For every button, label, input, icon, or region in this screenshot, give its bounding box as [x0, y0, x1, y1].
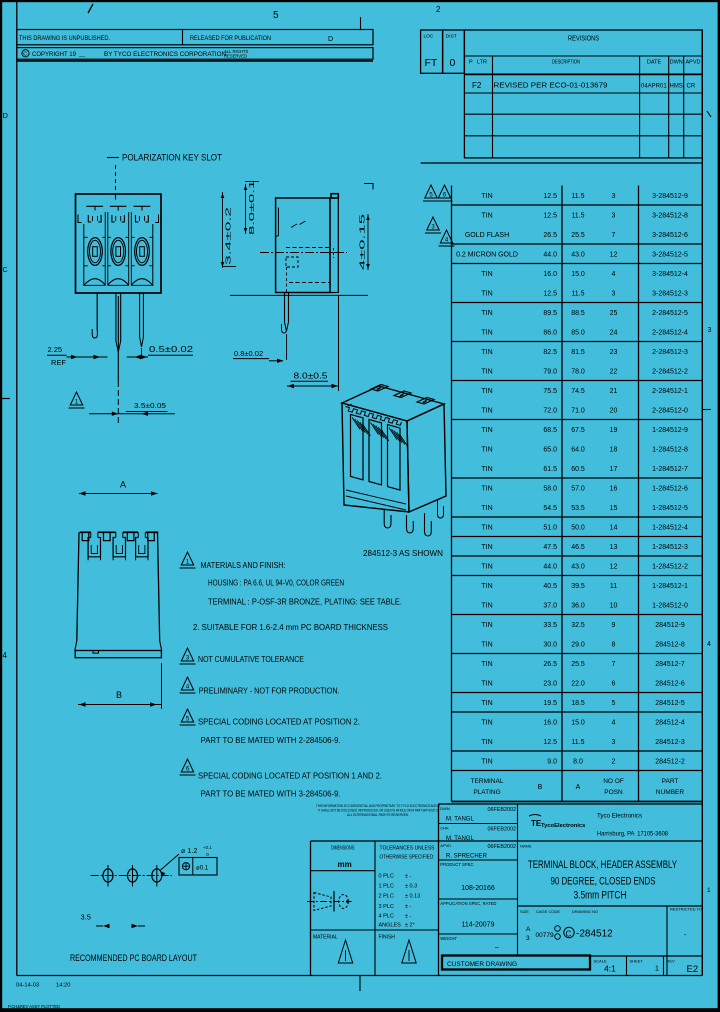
svg-text:CUSTOMER DRAWING: CUSTOMER DRAWING	[447, 961, 517, 968]
svg-text:06FEB2002: 06FEB2002	[488, 844, 516, 850]
svg-text:3: 3	[612, 212, 616, 219]
svg-text:RESERVED: RESERVED	[224, 54, 247, 59]
svg-text:RESTRICTED TO: RESTRICTED TO	[670, 907, 702, 912]
svg-text:TIN: TIN	[481, 310, 492, 317]
svg-text:85.0: 85.0	[571, 329, 585, 336]
svg-text:9.0: 9.0	[547, 758, 557, 765]
svg-text:R. SPRECHER: R. SPRECHER	[446, 854, 488, 860]
svg-text:2. SUITABLE FOR 1.6-2.4 mm PC: 2. SUITABLE FOR 1.6-2.4 mm PC BOARD THIC…	[193, 622, 388, 632]
svg-text:21: 21	[610, 388, 618, 395]
svg-text:12: 12	[610, 251, 618, 258]
svg-text:2-284512-3: 2-284512-3	[652, 349, 688, 356]
svg-text:TIN: TIN	[481, 563, 492, 570]
svg-text:1-284512-9: 1-284512-9	[652, 427, 688, 434]
svg-text:OTHERWISE SPECIFIED:: OTHERWISE SPECIFIED:	[380, 855, 435, 861]
svg-text:74.5: 74.5	[571, 388, 585, 395]
svg-text:81.5: 81.5	[571, 349, 585, 356]
svg-text:89.5: 89.5	[543, 310, 557, 317]
svg-text:DIST: DIST	[446, 34, 457, 40]
svg-text:51.0: 51.0	[543, 524, 557, 531]
svg-text:ANGLES: ANGLES	[379, 923, 402, 929]
svg-text:43.0: 43.0	[571, 251, 585, 258]
svg-text:CAGE CODE: CAGE CODE	[536, 909, 560, 914]
svg-text:1-284512-8: 1-284512-8	[652, 446, 688, 453]
svg-text:M. TANGL: M. TANGL	[446, 836, 474, 842]
svg-text:4±0.15: 4±0.15	[358, 214, 367, 270]
svg-text:16: 16	[610, 485, 618, 492]
svg-text:A: A	[120, 480, 126, 490]
svg-text:TIN: TIN	[481, 739, 492, 746]
svg-text:REVISIONS: REVISIONS	[568, 36, 599, 43]
svg-text:30.0: 30.0	[543, 641, 557, 648]
svg-text:22: 22	[610, 368, 618, 375]
svg-text:CHK: CHK	[440, 826, 449, 831]
svg-text:3-284512-9: 3-284512-9	[652, 193, 688, 200]
svg-text:19.5: 19.5	[543, 700, 557, 707]
svg-text:90 DEGREE, CLOSED ENDS: 90 DEGREE, CLOSED ENDS	[551, 876, 656, 888]
svg-text:± -: ± -	[405, 874, 412, 880]
svg-text:7: 7	[612, 661, 616, 668]
svg-text:DRAWING NO: DRAWING NO	[572, 909, 598, 914]
svg-text:29.0: 29.0	[571, 641, 585, 648]
svg-text:A: A	[526, 926, 531, 933]
svg-text:61.5: 61.5	[543, 466, 557, 473]
svg-text:-: -	[684, 932, 687, 939]
svg-text:TIN: TIN	[481, 680, 492, 687]
svg-text:18.5: 18.5	[571, 700, 585, 707]
svg-text:06FEB2002: 06FEB2002	[488, 827, 516, 833]
svg-text:20: 20	[610, 407, 618, 414]
svg-text:10: 10	[610, 602, 618, 609]
svg-text:33.5: 33.5	[543, 622, 557, 629]
svg-text:15.0: 15.0	[571, 271, 585, 278]
svg-text:THIS DRAWING IS UNPUBLISHED.: THIS DRAWING IS UNPUBLISHED.	[19, 35, 110, 42]
svg-text:3: 3	[612, 290, 616, 297]
svg-text:SIZE: SIZE	[520, 909, 529, 914]
svg-text:MATERIAL: MATERIAL	[313, 935, 338, 941]
svg-text:REV: REV	[667, 959, 676, 964]
svg-text:TIN: TIN	[481, 349, 492, 356]
svg-text:79.0: 79.0	[543, 368, 557, 375]
svg-text:⌀ 1.2: ⌀ 1.2	[181, 846, 197, 855]
svg-text:284512-5: 284512-5	[655, 700, 685, 707]
svg-text:C: C	[566, 930, 572, 939]
svg-text:2 PLC: 2 PLC	[379, 894, 394, 900]
svg-text:2-284512-2: 2-284512-2	[652, 368, 688, 375]
svg-text:__: __	[78, 52, 86, 58]
svg-text:4: 4	[612, 719, 616, 726]
svg-text:00779: 00779	[536, 932, 554, 939]
svg-text:D: D	[328, 36, 333, 43]
svg-text:⌀0.1: ⌀0.1	[196, 864, 209, 871]
svg-text:16.0: 16.0	[543, 719, 557, 726]
svg-text:11: 11	[610, 583, 617, 590]
svg-text:ALL INTERNATIONAL RIGHTS RESER: ALL INTERNATIONAL RIGHTS RESERVED.	[347, 813, 409, 817]
svg-text:PLATING: PLATING	[473, 789, 500, 796]
svg-text:3-284512-8: 3-284512-8	[652, 212, 688, 219]
svg-text:DIMENSIONS:: DIMENSIONS:	[331, 846, 355, 852]
svg-text:SPECIAL CODING LOCATED AT POSI: SPECIAL CODING LOCATED AT POSITION 1 AND…	[198, 771, 382, 781]
svg-text:1-284512-1: 1-284512-1	[652, 583, 688, 590]
svg-text:1 PLC: 1 PLC	[379, 884, 394, 890]
svg-text:TIN: TIN	[481, 388, 492, 395]
svg-text:1-284512-6: 1-284512-6	[652, 485, 688, 492]
svg-text:24: 24	[610, 329, 618, 336]
svg-text:284512-9: 284512-9	[655, 622, 685, 629]
svg-text:IT SHALL NOT BE DISCLOSED, REP: IT SHALL NOT BE DISCLOSED, REPRODUCED, O…	[318, 809, 438, 813]
svg-text:± 0.13: ± 0.13	[405, 894, 420, 900]
svg-text:3: 3	[612, 739, 616, 746]
svg-text:TIN: TIN	[481, 485, 492, 492]
svg-text:1-284512-3: 1-284512-3	[652, 544, 688, 551]
svg-text:TIN: TIN	[481, 193, 492, 200]
svg-text:2: 2	[436, 5, 441, 14]
svg-text:1-284512-4: 1-284512-4	[652, 524, 688, 531]
svg-text:44.0: 44.0	[543, 251, 557, 258]
svg-text:TIN: TIN	[481, 583, 492, 590]
svg-text:65.0: 65.0	[543, 446, 557, 453]
svg-text:GOLD FLASH: GOLD FLASH	[465, 232, 509, 239]
svg-text:4: 4	[707, 641, 711, 648]
svg-text:23: 23	[610, 349, 618, 356]
svg-text:26.5: 26.5	[543, 232, 557, 239]
svg-text:8: 8	[612, 641, 616, 648]
svg-text:THIS INFORMATION IS CONFIDENTI: THIS INFORMATION IS CONFIDENTIAL AND PRO…	[316, 804, 440, 808]
svg-text:1-284512-0: 1-284512-0	[652, 602, 688, 609]
svg-text:44.0: 44.0	[543, 563, 557, 570]
svg-text:PART TO BE MATED WITH 3-284506: PART TO BE MATED WITH 3-284506-9.	[201, 789, 341, 799]
svg-text:TIN: TIN	[481, 719, 492, 726]
svg-text:1: 1	[655, 966, 659, 973]
svg-text:DATE: DATE	[647, 60, 662, 66]
svg-text:APPLICATION SPEC, RATED: APPLICATION SPEC, RATED	[440, 901, 496, 906]
svg-text:DWN: DWN	[670, 60, 683, 66]
svg-text:3: 3	[526, 935, 530, 942]
svg-text:25: 25	[610, 310, 618, 317]
svg-text:3-284512-3: 3-284512-3	[652, 290, 688, 297]
svg-text:0: 0	[450, 57, 456, 69]
svg-text:11.5: 11.5	[571, 290, 584, 297]
svg-text:BY TYCO ELECTRONICS CORPORATIO: BY TYCO ELECTRONICS CORPORATION	[104, 51, 227, 58]
svg-text:3: 3	[708, 327, 712, 334]
svg-text:C: C	[3, 267, 8, 274]
svg-text:23.0: 23.0	[543, 680, 557, 687]
svg-text:22.0: 22.0	[571, 680, 585, 687]
svg-text:36.0: 36.0	[571, 602, 585, 609]
svg-text:18: 18	[610, 446, 618, 453]
svg-text:B: B	[538, 784, 543, 791]
svg-text:11.5: 11.5	[571, 212, 584, 219]
svg-text:CR: CR	[687, 84, 696, 90]
svg-text:POLARIZATION KEY SLOT: POLARIZATION KEY SLOT	[122, 153, 222, 163]
svg-text:32.5: 32.5	[571, 622, 585, 629]
svg-text:TIN: TIN	[481, 602, 492, 609]
svg-text:± 2°: ± 2°	[405, 923, 415, 929]
svg-text:TIN: TIN	[481, 661, 492, 668]
svg-text:58.0: 58.0	[543, 485, 557, 492]
svg-text:A: A	[576, 784, 581, 791]
svg-text:± 0.3: ± 0.3	[405, 884, 417, 890]
svg-text:DWN: DWN	[440, 806, 450, 811]
svg-text:2.25: 2.25	[48, 345, 63, 354]
svg-text:REVISED PER ECO-01-013679: REVISED PER ECO-01-013679	[494, 81, 608, 90]
svg-text:12.5: 12.5	[543, 290, 557, 297]
svg-text:TERMINAL : P-OSF-3R BRONZE, PL: TERMINAL : P-OSF-3R BRONZE, PLATING: SEE…	[208, 596, 402, 606]
svg-text:TIN: TIN	[481, 368, 492, 375]
svg-text:TIN: TIN	[481, 505, 492, 512]
svg-text:7: 7	[612, 232, 616, 239]
svg-text:B: B	[116, 690, 122, 700]
svg-text:9: 9	[612, 622, 616, 629]
svg-text:4: 4	[612, 271, 616, 278]
svg-text:47.5: 47.5	[543, 544, 557, 551]
svg-text:MATERIALS AND FINISH:: MATERIALS AND FINISH:	[201, 560, 286, 570]
svg-text:TIN: TIN	[481, 329, 492, 336]
svg-text:50.0: 50.0	[571, 524, 585, 531]
svg-text:F2: F2	[472, 81, 482, 90]
svg-text:60.5: 60.5	[571, 466, 585, 473]
svg-text:13: 13	[610, 544, 618, 551]
svg-text:57.0: 57.0	[571, 485, 585, 492]
svg-text:TIN: TIN	[481, 622, 492, 629]
svg-text:2: 2	[612, 758, 616, 765]
svg-text:NAME: NAME	[520, 844, 532, 849]
svg-text:72.0: 72.0	[543, 407, 557, 414]
svg-text:2-284512-4: 2-284512-4	[652, 329, 688, 336]
svg-text:3.5±0.05: 3.5±0.05	[134, 401, 166, 410]
svg-text:TIN: TIN	[481, 271, 492, 278]
svg-text:M. TANGL: M. TANGL	[446, 817, 474, 823]
svg-text:06FEB2002: 06FEB2002	[488, 807, 516, 813]
svg-text:3.5mm PITCH: 3.5mm PITCH	[574, 890, 627, 902]
svg-text:0 PLC: 0 PLC	[379, 874, 394, 880]
svg-text:SHEET: SHEET	[630, 959, 644, 964]
svg-text:FT: FT	[425, 57, 438, 69]
svg-text:TycoElectronics: TycoElectronics	[541, 823, 585, 829]
svg-text:67.5: 67.5	[571, 427, 585, 434]
svg-text:3.4±0.2: 3.4±0.2	[224, 207, 233, 265]
svg-text:284512-6: 284512-6	[655, 680, 685, 687]
svg-text:-284512: -284512	[576, 929, 613, 940]
svg-text:86.0: 86.0	[543, 329, 557, 336]
svg-text:TIN: TIN	[481, 290, 492, 297]
svg-text:± -: ± -	[405, 904, 412, 910]
svg-text:284512-7: 284512-7	[655, 661, 685, 668]
svg-text:5: 5	[273, 10, 279, 21]
svg-text:WEIGHT: WEIGHT	[440, 936, 457, 941]
svg-text:64.0: 64.0	[571, 446, 585, 453]
svg-text:TIN: TIN	[481, 407, 492, 414]
svg-text:0: 0	[205, 852, 209, 857]
svg-text:284512-3: 284512-3	[655, 739, 685, 746]
svg-text:11.5: 11.5	[571, 193, 584, 200]
svg-text:C: C	[23, 52, 27, 58]
svg-text:3-284512-6: 3-284512-6	[652, 232, 688, 239]
svg-text:TERMINAL: TERMINAL	[471, 778, 504, 785]
svg-text:APVD: APVD	[440, 843, 451, 848]
svg-text:8.0±0.1: 8.0±0.1	[247, 180, 256, 235]
svg-text:Tyco Electronics: Tyco Electronics	[597, 813, 642, 820]
svg-text:DESCRIPTION: DESCRIPTION	[552, 60, 580, 66]
svg-text:2-284512-0: 2-284512-0	[652, 407, 688, 414]
svg-text:FINISH: FINISH	[379, 935, 396, 941]
svg-text:COPYRIGHT 19: COPYRIGHT 19	[32, 52, 77, 58]
svg-text:HOUSING : PA 6.6, UL 94-V0, CO: HOUSING : PA 6.6, UL 94-V0, COLOR GREEN	[208, 578, 344, 588]
svg-text:1-284512-2: 1-284512-2	[652, 563, 688, 570]
svg-text:3 PLC: 3 PLC	[379, 904, 394, 910]
svg-text:RELEASED FOR PUBLICATION: RELEASED FOR PUBLICATION	[190, 35, 271, 42]
svg-text:TIN: TIN	[481, 700, 492, 707]
svg-text:PART TO BE MATED WITH 2-284506: PART TO BE MATED WITH 2-284506-9.	[201, 735, 341, 745]
svg-text:12.5: 12.5	[543, 739, 557, 746]
svg-text:37.0: 37.0	[543, 602, 557, 609]
svg-text:mm: mm	[338, 860, 352, 869]
svg-text:–: –	[495, 944, 499, 951]
svg-text:25.5: 25.5	[571, 232, 585, 239]
svg-text:TOLERANCES UNLESS: TOLERANCES UNLESS	[380, 846, 435, 852]
svg-text:39.5: 39.5	[571, 583, 585, 590]
svg-text:46.5: 46.5	[571, 544, 585, 551]
svg-text:E2: E2	[687, 964, 699, 975]
svg-text:D: D	[3, 111, 9, 120]
svg-text:3.5: 3.5	[81, 913, 91, 922]
svg-text:54.5: 54.5	[543, 505, 557, 512]
svg-text:12: 12	[610, 563, 618, 570]
svg-text:78.0: 78.0	[571, 368, 585, 375]
svg-text:11.5: 11.5	[571, 739, 584, 746]
svg-text:16.0: 16.0	[543, 271, 557, 278]
svg-text:43.0: 43.0	[571, 563, 585, 570]
svg-text:75.5: 75.5	[543, 388, 557, 395]
svg-text:68.5: 68.5	[543, 427, 557, 434]
svg-text:0.5±0.02: 0.5±0.02	[149, 345, 193, 354]
svg-text:0.2 MICRON GOLD: 0.2 MICRON GOLD	[456, 251, 518, 258]
svg-text:53.5: 53.5	[571, 505, 585, 512]
svg-text:8.0: 8.0	[573, 758, 583, 765]
svg-text:1-284512-5: 1-284512-5	[652, 505, 688, 512]
svg-text:8.0±0.5: 8.0±0.5	[294, 372, 329, 381]
svg-text:1-284512-7: 1-284512-7	[652, 466, 688, 473]
svg-text:71.0: 71.0	[571, 407, 585, 414]
svg-text:3-284512-4: 3-284512-4	[652, 271, 688, 278]
svg-text:TIN: TIN	[481, 446, 492, 453]
svg-text:LTR: LTR	[477, 60, 487, 66]
svg-text:HMS: HMS	[670, 84, 683, 90]
svg-text:± -: ± -	[405, 914, 412, 920]
svg-text:4 PLC: 4 PLC	[379, 914, 394, 920]
svg-text:TIN: TIN	[481, 212, 492, 219]
svg-text:1: 1	[707, 887, 711, 894]
svg-text:15: 15	[610, 505, 618, 512]
svg-text:P.CH&REV ASSY PLOTTED: P.CH&REV ASSY PLOTTED	[8, 1004, 61, 1009]
svg-text:04APR01: 04APR01	[641, 84, 667, 90]
svg-text:LOC: LOC	[424, 34, 434, 40]
svg-text:+0.1: +0.1	[203, 845, 212, 850]
svg-text:12.5: 12.5	[543, 193, 557, 200]
svg-text:NOT CUMULATIVE TOLERANCE: NOT CUMULATIVE TOLERANCE	[198, 654, 304, 664]
svg-text:25.5: 25.5	[571, 661, 585, 668]
svg-text:SPECIAL CODING LOCATED AT POSI: SPECIAL CODING LOCATED AT POSITION 2.	[198, 717, 360, 727]
svg-text:TIN: TIN	[481, 524, 492, 531]
svg-text:19: 19	[610, 427, 618, 434]
svg-text:17: 17	[610, 466, 618, 473]
svg-text:40.5: 40.5	[543, 583, 557, 590]
svg-text:3-284512-5: 3-284512-5	[652, 251, 688, 258]
svg-text:5: 5	[612, 700, 616, 707]
svg-text:TIN: TIN	[481, 758, 492, 765]
svg-text:4:1: 4:1	[604, 964, 616, 974]
svg-text:APVD: APVD	[686, 60, 701, 66]
svg-text:14: 14	[610, 524, 618, 531]
svg-text:TIN: TIN	[481, 544, 492, 551]
svg-text:Harrisburg, PA 17105-3608: Harrisburg, PA 17105-3608	[597, 831, 669, 838]
svg-text:15.0: 15.0	[571, 719, 585, 726]
svg-text:TIN: TIN	[481, 466, 492, 473]
svg-text:PART: PART	[662, 778, 679, 785]
svg-text:114-20079: 114-20079	[462, 922, 495, 929]
svg-text:2-284512-1: 2-284512-1	[652, 388, 688, 395]
svg-text:4: 4	[3, 651, 8, 660]
svg-text:NUMBER: NUMBER	[656, 789, 684, 796]
svg-text:PRODUCT SPEC: PRODUCT SPEC	[440, 862, 473, 867]
svg-text:3: 3	[612, 193, 616, 200]
svg-text:P: P	[469, 60, 473, 66]
svg-text:2-284512-5: 2-284512-5	[652, 310, 688, 317]
svg-text:REF: REF	[51, 358, 66, 367]
svg-text:PRELIMINARY - NOT FOR PRODUCTI: PRELIMINARY - NOT FOR PRODUCTION.	[199, 686, 340, 696]
svg-text:TIN: TIN	[481, 427, 492, 434]
svg-text:12.5: 12.5	[543, 212, 557, 219]
svg-text:88.5: 88.5	[571, 310, 585, 317]
svg-text:26.5: 26.5	[543, 661, 557, 668]
svg-text:284512-8: 284512-8	[655, 641, 685, 648]
svg-text:14:20: 14:20	[56, 983, 71, 989]
svg-text:284512-4: 284512-4	[655, 719, 685, 726]
svg-text:108-20166: 108-20166	[461, 885, 495, 892]
svg-text:0.8±0.02: 0.8±0.02	[234, 349, 263, 358]
svg-text:6: 6	[612, 680, 616, 687]
svg-text:NO OF: NO OF	[603, 778, 624, 785]
svg-text:POSN: POSN	[604, 789, 623, 796]
svg-text:TIN: TIN	[481, 641, 492, 648]
svg-text:04-14-03: 04-14-03	[16, 983, 39, 989]
svg-text:284512-2: 284512-2	[655, 758, 685, 765]
svg-text:RECOMMENDED PC BOARD LAYOUT: RECOMMENDED PC BOARD LAYOUT	[70, 953, 197, 963]
svg-text:82.5: 82.5	[543, 349, 557, 356]
svg-text:284512-3 AS SHOWN: 284512-3 AS SHOWN	[363, 548, 443, 558]
svg-text:TERMINAL BLOCK, HEADER ASSEMBL: TERMINAL BLOCK, HEADER ASSEMBLY	[528, 859, 677, 871]
